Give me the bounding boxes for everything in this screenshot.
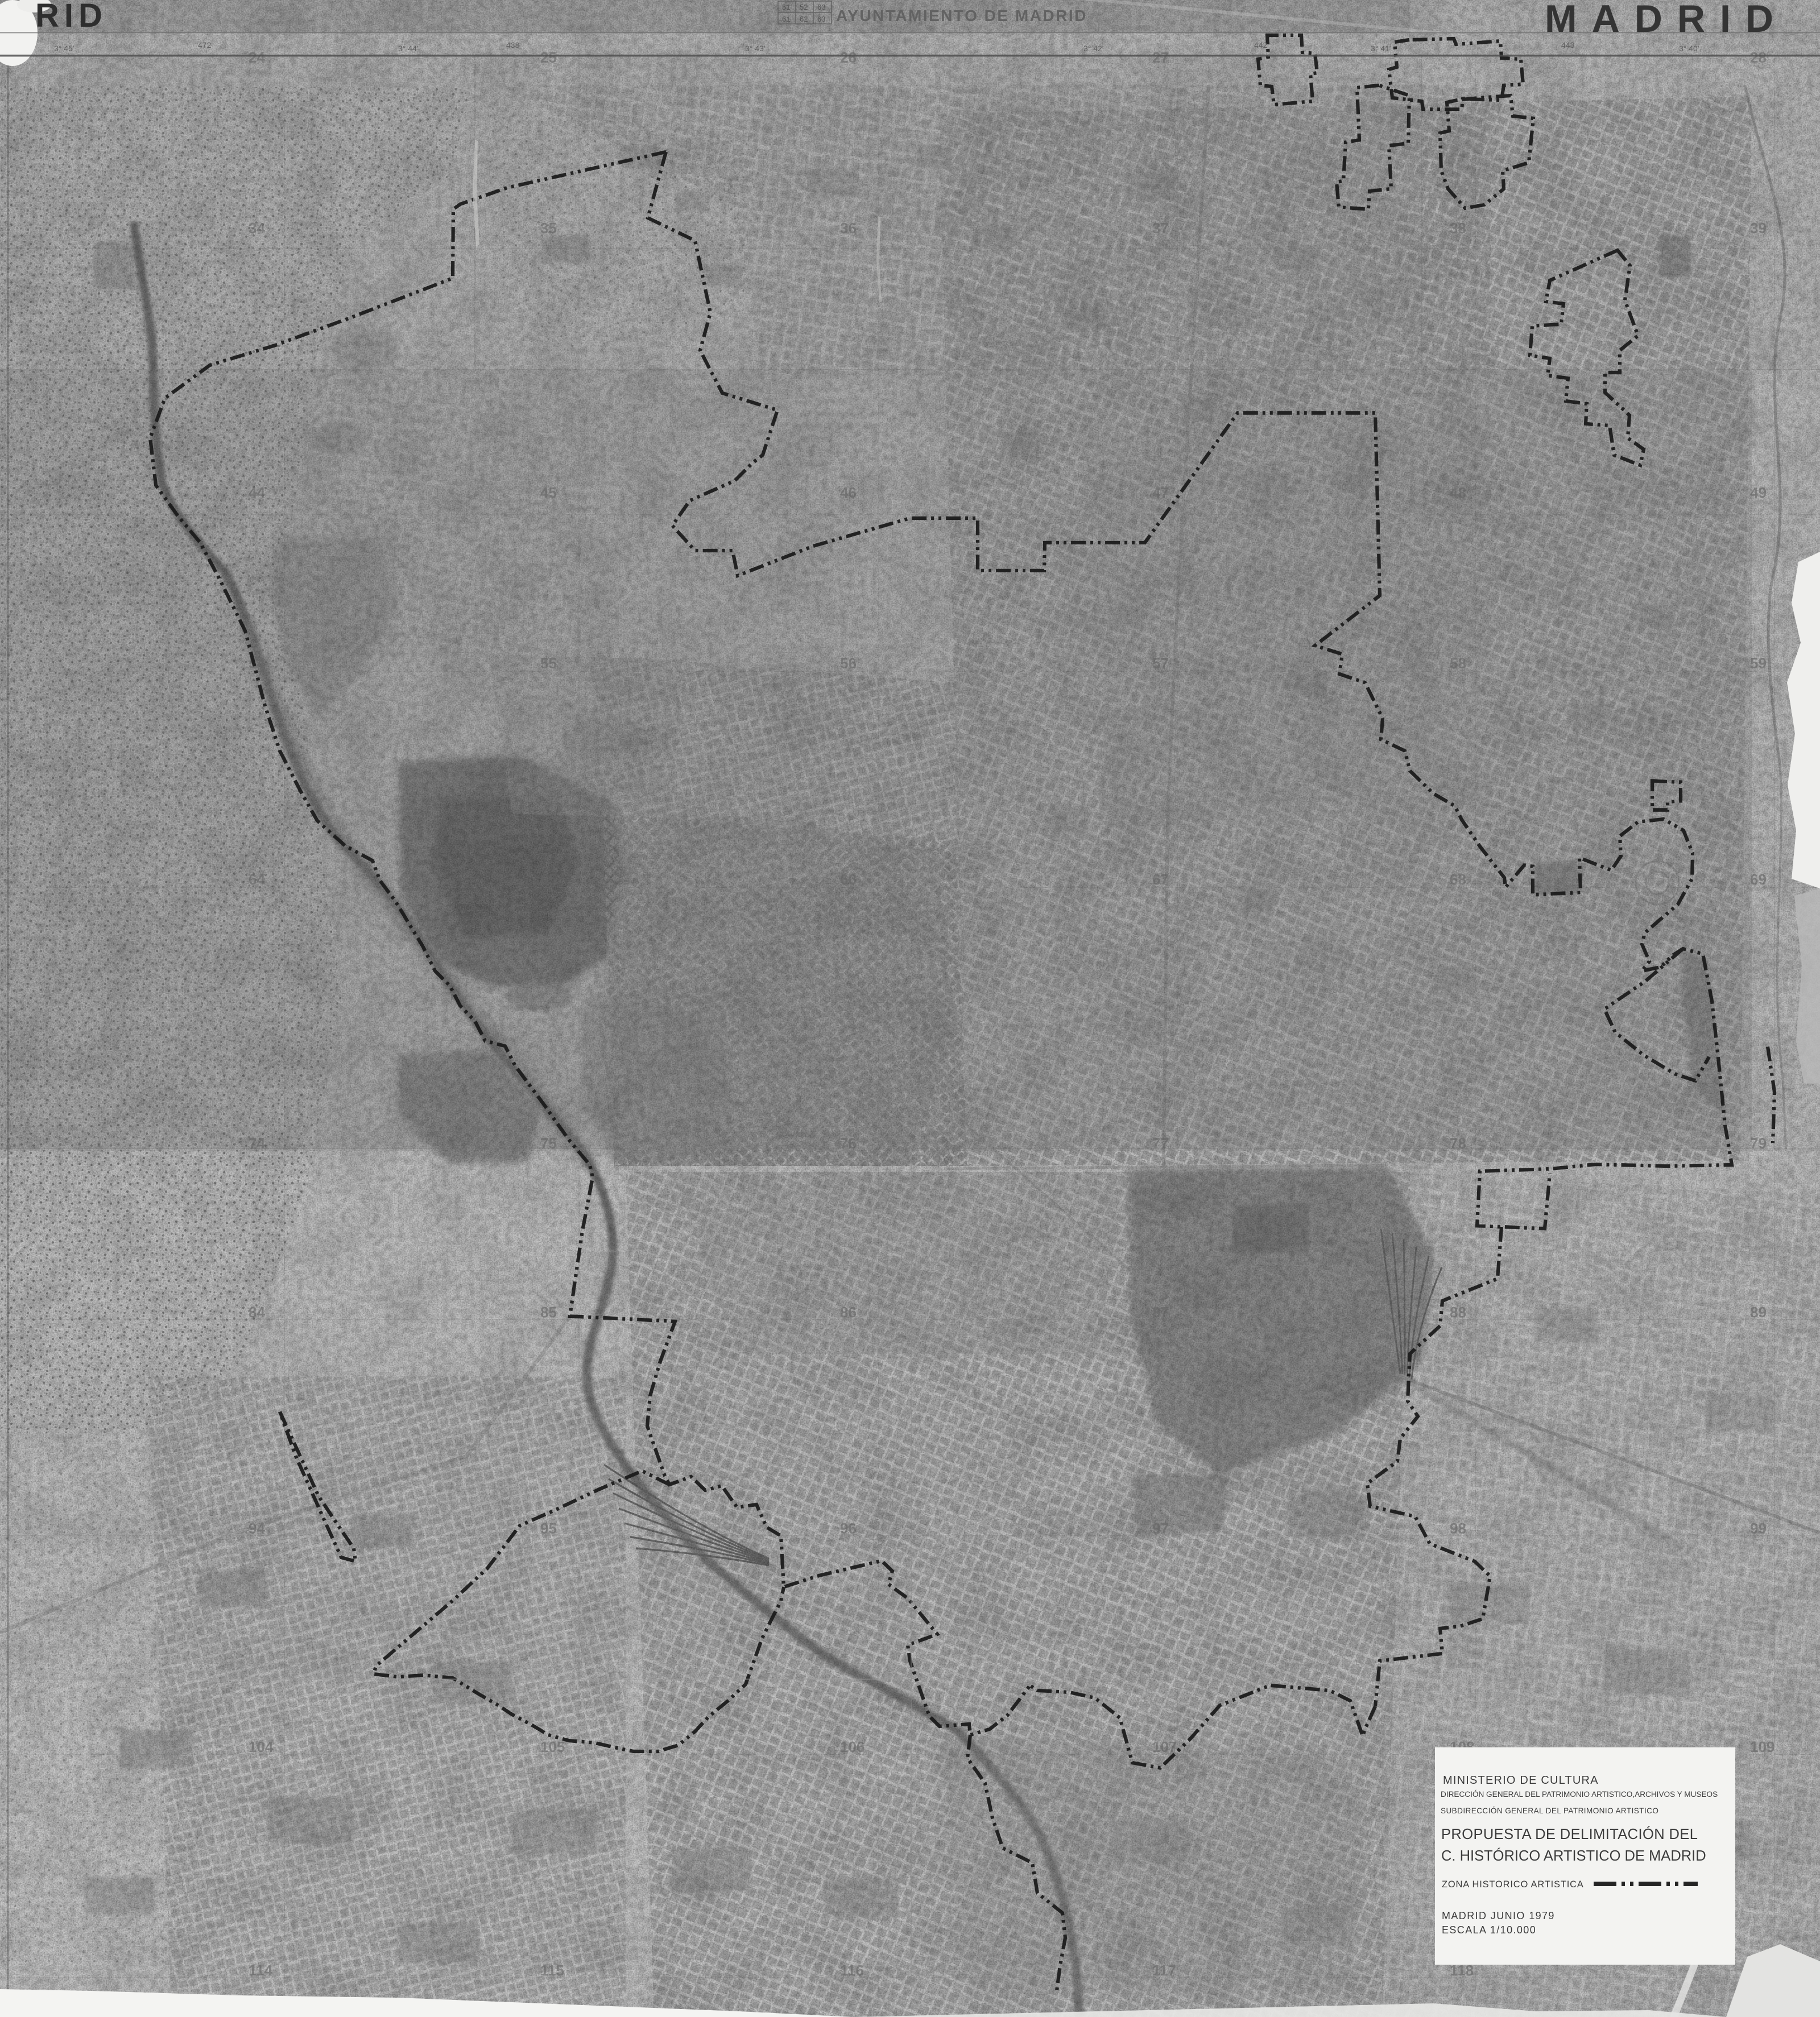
svg-text:64: 64 bbox=[249, 871, 265, 888]
svg-text:86: 86 bbox=[840, 1304, 857, 1321]
svg-text:77: 77 bbox=[1152, 1135, 1169, 1152]
svg-text:44: 44 bbox=[249, 484, 265, 501]
svg-text:62: 62 bbox=[800, 15, 808, 23]
svg-text:107: 107 bbox=[1152, 1738, 1177, 1755]
svg-text:94: 94 bbox=[249, 1520, 265, 1537]
svg-text:45: 45 bbox=[540, 484, 557, 501]
svg-text:69: 69 bbox=[1750, 871, 1767, 888]
svg-text:117: 117 bbox=[1152, 1962, 1176, 1979]
svg-text:97: 97 bbox=[1152, 1520, 1169, 1537]
svg-text:PROPUESTA DE DELIMITACIÓN DEL: PROPUESTA DE DELIMITACIÓN DEL bbox=[1441, 1826, 1698, 1842]
svg-text:35: 35 bbox=[540, 220, 557, 237]
svg-text:99: 99 bbox=[1750, 1520, 1767, 1537]
svg-text:38: 38 bbox=[1450, 220, 1466, 237]
svg-text:96: 96 bbox=[840, 1520, 857, 1537]
svg-text:24: 24 bbox=[249, 49, 265, 66]
svg-text:C. HISTÓRICO ARTISTICO DE MADR: C. HISTÓRICO ARTISTICO DE MADRID bbox=[1441, 1847, 1706, 1864]
svg-text:ZONA HISTORICO ARTISTICA: ZONA HISTORICO ARTISTICA bbox=[1442, 1879, 1584, 1890]
svg-text:37: 37 bbox=[1152, 220, 1169, 237]
svg-text:84: 84 bbox=[249, 1304, 265, 1321]
svg-text:88: 88 bbox=[1450, 1304, 1466, 1321]
svg-text:55: 55 bbox=[540, 655, 557, 672]
svg-text:3° 41': 3° 41' bbox=[1371, 44, 1391, 53]
svg-text:58: 58 bbox=[1450, 655, 1466, 672]
svg-text:472: 472 bbox=[198, 40, 212, 49]
svg-text:MADRID: MADRID bbox=[1545, 0, 1788, 40]
svg-text:68: 68 bbox=[1450, 871, 1466, 888]
svg-text:74: 74 bbox=[249, 1135, 265, 1152]
svg-text:65: 65 bbox=[540, 871, 557, 888]
svg-text:ESCALA 1/10.000: ESCALA 1/10.000 bbox=[1442, 1924, 1536, 1936]
svg-text:89: 89 bbox=[1750, 1304, 1767, 1321]
svg-text:MINISTERIO DE CULTURA: MINISTERIO DE CULTURA bbox=[1443, 1774, 1599, 1787]
svg-text:87: 87 bbox=[1152, 1304, 1169, 1321]
svg-text:51: 51 bbox=[782, 3, 790, 11]
svg-text:36: 36 bbox=[840, 220, 857, 237]
svg-text:SUBDIRECCIÓN GENERAL DEL PATRI: SUBDIRECCIÓN GENERAL DEL PATRIMONIO ARTI… bbox=[1441, 1807, 1658, 1815]
svg-text:3° 42': 3° 42' bbox=[1083, 44, 1104, 53]
svg-text:75: 75 bbox=[540, 1135, 557, 1152]
svg-text:106: 106 bbox=[840, 1738, 864, 1755]
svg-text:109: 109 bbox=[1750, 1738, 1774, 1755]
svg-text:28: 28 bbox=[1750, 49, 1767, 66]
svg-text:27: 27 bbox=[1152, 49, 1169, 66]
svg-text:61: 61 bbox=[782, 15, 790, 23]
svg-text:85: 85 bbox=[540, 1304, 557, 1321]
svg-text:3° 43': 3° 43' bbox=[745, 44, 766, 53]
svg-text:RID: RID bbox=[35, 0, 107, 34]
svg-text:79: 79 bbox=[1750, 1135, 1767, 1152]
svg-text:57: 57 bbox=[1152, 655, 1169, 672]
svg-text:66: 66 bbox=[840, 871, 857, 888]
svg-text:104: 104 bbox=[249, 1738, 274, 1755]
svg-text:52: 52 bbox=[800, 3, 808, 11]
svg-text:442: 442 bbox=[1254, 40, 1268, 49]
svg-text:116: 116 bbox=[840, 1962, 864, 1979]
svg-text:DIRECCIÓN GENERAL DEL PATRIMON: DIRECCIÓN GENERAL DEL PATRIMONIO ARTISTI… bbox=[1441, 1790, 1718, 1799]
svg-text:438: 438 bbox=[506, 40, 520, 49]
svg-text:3° 44': 3° 44' bbox=[398, 44, 419, 53]
svg-text:47: 47 bbox=[1152, 484, 1169, 501]
svg-text:26: 26 bbox=[840, 49, 857, 66]
svg-text:63: 63 bbox=[817, 15, 825, 23]
svg-text:48: 48 bbox=[1450, 484, 1466, 501]
svg-text:67: 67 bbox=[1152, 871, 1169, 888]
svg-text:443: 443 bbox=[1561, 40, 1575, 49]
svg-text:76: 76 bbox=[840, 1135, 857, 1152]
svg-text:98: 98 bbox=[1450, 1520, 1466, 1537]
svg-text:56: 56 bbox=[840, 655, 857, 672]
svg-text:3° 40': 3° 40' bbox=[1679, 44, 1699, 53]
svg-text:95: 95 bbox=[540, 1520, 557, 1537]
svg-text:3° 45': 3° 45' bbox=[54, 44, 75, 53]
svg-text:25: 25 bbox=[540, 49, 557, 66]
svg-text:59: 59 bbox=[1750, 655, 1767, 672]
svg-text:105: 105 bbox=[540, 1738, 565, 1755]
svg-text:34: 34 bbox=[249, 220, 265, 237]
svg-text:63: 63 bbox=[817, 3, 825, 11]
svg-text:39: 39 bbox=[1750, 220, 1767, 237]
svg-text:49: 49 bbox=[1750, 484, 1767, 501]
svg-text:AYUNTAMIENTO DE MADRID: AYUNTAMIENTO DE MADRID bbox=[836, 7, 1087, 24]
svg-text:78: 78 bbox=[1450, 1135, 1466, 1152]
svg-text:MADRID JUNIO 1979: MADRID JUNIO 1979 bbox=[1442, 1910, 1555, 1921]
svg-text:46: 46 bbox=[840, 484, 857, 501]
svg-text:114: 114 bbox=[249, 1962, 272, 1979]
svg-text:115: 115 bbox=[540, 1962, 564, 1979]
